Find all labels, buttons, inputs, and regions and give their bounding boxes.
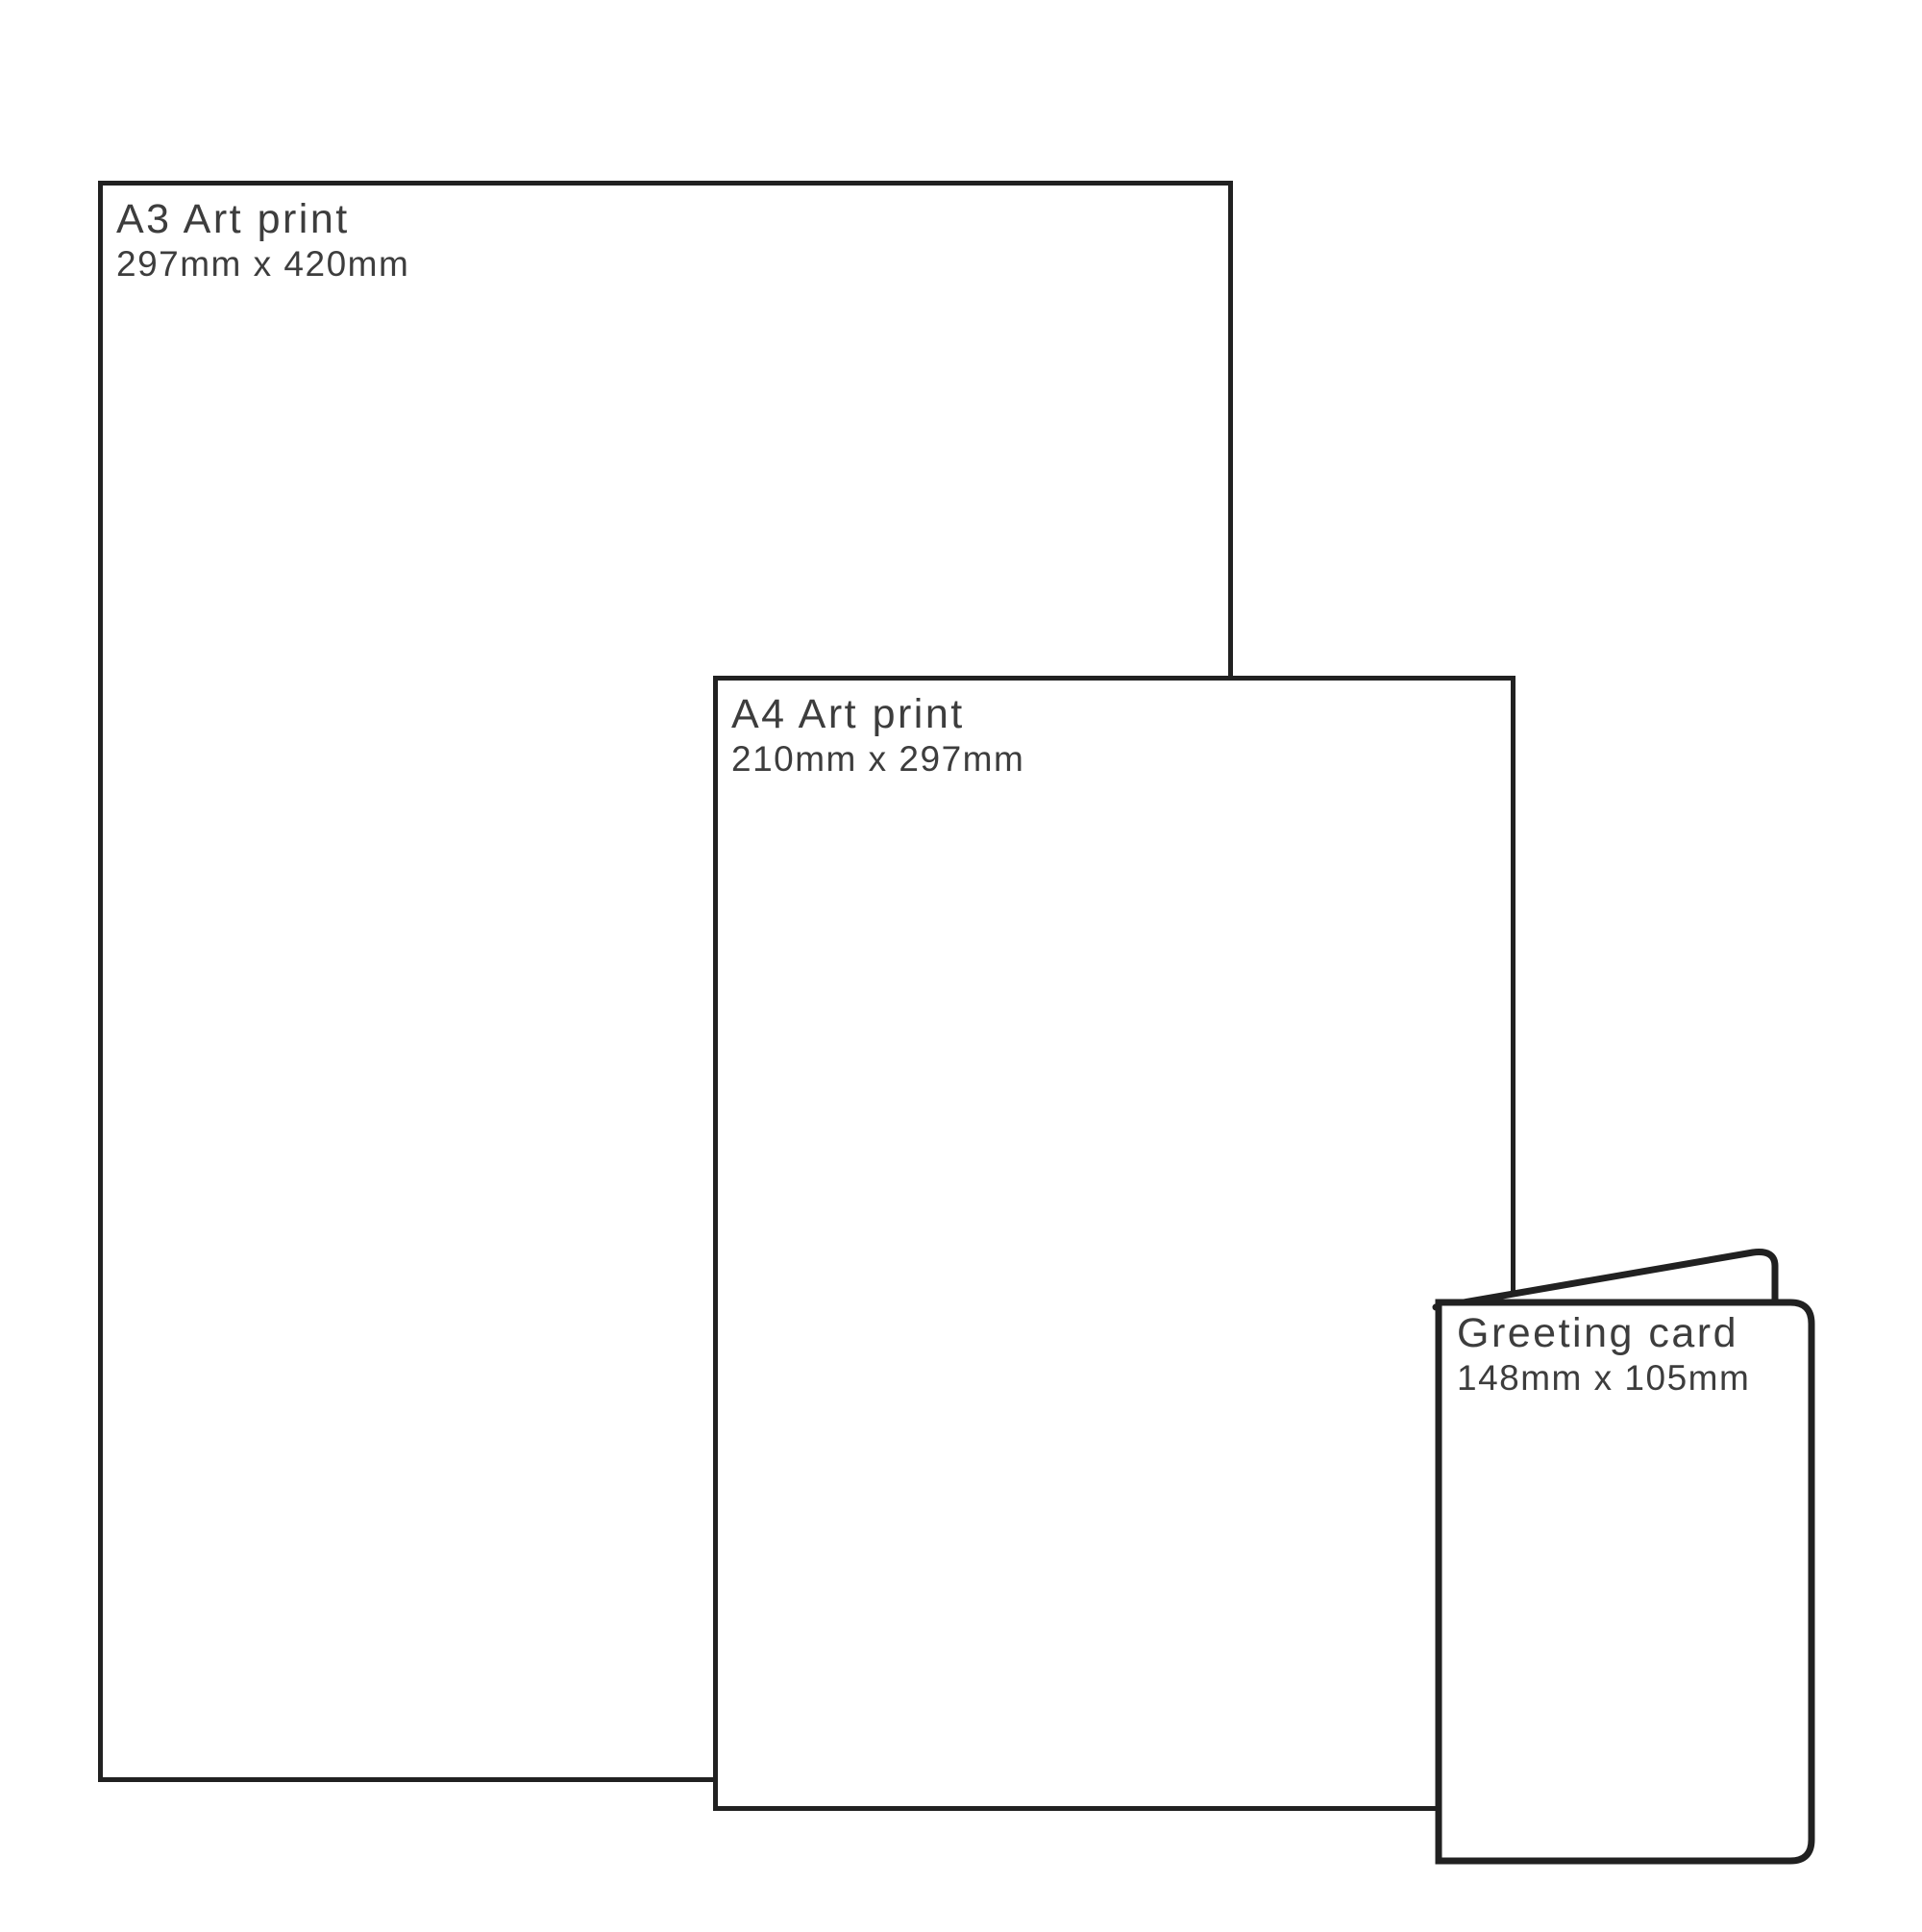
a4-title: A4 Art print (731, 692, 1024, 736)
greeting-card-fold-flap (1436, 1252, 1775, 1307)
a3-label: A3 Art print 297mm x 420mm (116, 197, 409, 284)
greeting-card-title: Greeting card (1457, 1311, 1750, 1355)
a3-dimensions: 297mm x 420mm (116, 245, 409, 284)
a3-title: A3 Art print (116, 197, 409, 241)
print-size-comparison-diagram: A3 Art print 297mm x 420mm A4 Art print … (0, 0, 1922, 1922)
a4-label: A4 Art print 210mm x 297mm (731, 692, 1024, 779)
greeting-card-dimensions: 148mm x 105mm (1457, 1359, 1750, 1398)
a4-dimensions: 210mm x 297mm (731, 740, 1024, 779)
greeting-card-label: Greeting card 148mm x 105mm (1457, 1311, 1750, 1398)
